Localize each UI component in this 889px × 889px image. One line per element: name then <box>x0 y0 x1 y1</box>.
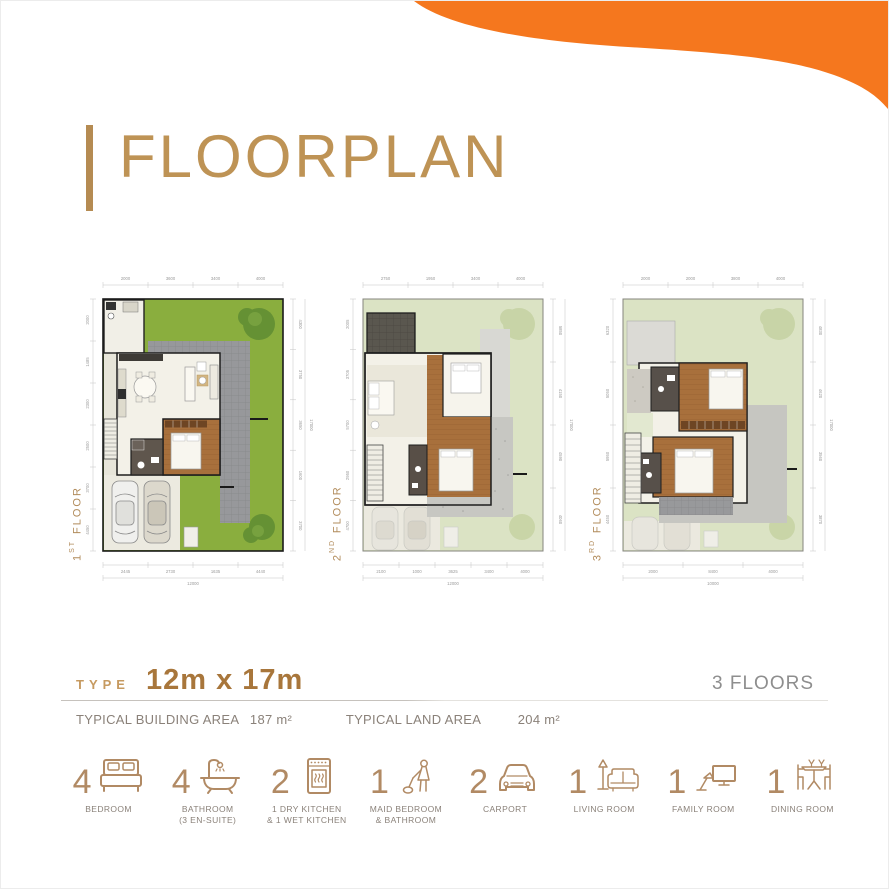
dim-label: 12000 <box>187 581 199 586</box>
feature-count: 1 <box>370 769 389 797</box>
dim-label: 3800 <box>731 276 741 281</box>
feature-count: 1 <box>766 769 785 797</box>
type-label: TYPE <box>76 677 130 692</box>
dim-label: 8400 <box>708 569 718 574</box>
dim-label: 3750 <box>298 370 303 380</box>
floorplan-2nd-floor-drawing: 2750195034004000210010003625340040001200… <box>323 269 573 589</box>
dim-label: 3600 <box>166 276 176 281</box>
building-area-label: TYPICAL BUILDING AREA <box>76 712 246 727</box>
dim-label: 2300 <box>85 399 90 409</box>
feature-label: 1 DRY KITCHEN& 1 WET KITCHEN <box>267 804 347 827</box>
feature-label: BEDROOM <box>85 804 132 815</box>
floor-label-word: FLOOR <box>592 485 604 533</box>
land-area-value: 204 m² <box>518 712 560 727</box>
dim-label: 3700 <box>85 483 90 493</box>
feature-kitchen: 2 1 DRY KITCHEN& 1 WET KITCHEN <box>257 753 356 827</box>
dim-label: 4450 <box>85 525 90 535</box>
dim-label: 1000 <box>412 569 422 574</box>
feature-maid-room: 1 MAID BEDROOM& BATHROOM <box>356 753 455 827</box>
dim-label: 4440 <box>256 569 266 574</box>
floor-label-ordinal: ND <box>329 539 336 553</box>
land-area-label: TYPICAL LAND AREA <box>346 712 514 727</box>
floor-label-number: 2 <box>332 553 344 561</box>
dim-label: 4000 <box>776 276 786 281</box>
floorplan-3rd-floor: 2000200038004000200084004000100004830462… <box>583 269 839 591</box>
floorplan-brochure-page: FLOORPLAN <box>0 0 889 889</box>
dim-label: 3400 <box>484 569 494 574</box>
dim-label: 6320 <box>605 325 610 335</box>
floorplan-1st-floor-drawing: 2000360034004000244527301635444012000430… <box>63 269 313 589</box>
floors-count: 3 FLOORS <box>712 673 814 695</box>
feature-count: 1 <box>568 769 587 797</box>
floor-label-2: 2NDFLOOR <box>329 485 344 561</box>
dim-label: 2750 <box>381 276 391 281</box>
dim-label: 4150 <box>558 389 563 399</box>
feature-label: BATHROOM(3 EN-SUITE) <box>179 804 236 827</box>
feature-label: DINING ROOM <box>771 804 834 815</box>
dim-label: 1485 <box>85 357 90 367</box>
floorplan-2nd-floor: 2750195034004000210010003625340040001200… <box>323 269 579 591</box>
feature-count: 1 <box>667 769 686 797</box>
dim-label: 2000 <box>85 315 90 325</box>
dim-label: 2005 <box>345 319 350 329</box>
floor-label-3: 3RDFLOOR <box>589 485 604 561</box>
dim-label: 2730 <box>166 569 176 574</box>
page-title: FLOORPLAN <box>119 122 509 191</box>
bathtub-icon <box>196 757 244 797</box>
feature-dining-room: 1 DINING ROOM <box>753 753 852 827</box>
dim-label: 5850 <box>558 326 563 336</box>
floorplan-3rd-floor-drawing: 2000200038004000200084004000100004830462… <box>583 269 833 589</box>
feature-label: CARPORT <box>483 804 527 815</box>
dim-label: 2000 <box>641 276 651 281</box>
feature-carport: 2 CARPORT <box>456 753 555 827</box>
dim-label: 17000 <box>569 419 573 431</box>
dim-label: 4000 <box>516 276 526 281</box>
dim-label: 2445 <box>121 569 131 574</box>
tv-icon <box>691 757 739 797</box>
dim-label: 3400 <box>211 276 221 281</box>
dim-label: 12000 <box>447 581 459 586</box>
dim-label: 2000 <box>121 276 131 281</box>
dim-label: 5700 <box>345 420 350 430</box>
dim-label: 1950 <box>426 276 436 281</box>
feature-label: FAMILY ROOM <box>672 804 735 815</box>
floor-label-word: FLOOR <box>72 486 84 534</box>
sofa-icon <box>592 757 640 797</box>
dim-label: 10000 <box>707 581 719 586</box>
floor-label-ordinal: RD <box>589 539 596 553</box>
divider-line <box>61 700 828 701</box>
dim-label: 2950 <box>345 470 350 480</box>
title-accent-bar <box>86 125 93 211</box>
dim-label: 3705 <box>345 369 350 379</box>
floor-label-ordinal: ST <box>69 540 76 553</box>
dim-label: 1635 <box>211 569 221 574</box>
floorplan-1st-floor: 2000360034004000244527301635444012000430… <box>63 269 319 591</box>
dim-label: 2500 <box>85 441 90 451</box>
dim-label: 17000 <box>309 419 313 431</box>
dim-label: 1600 <box>298 471 303 481</box>
feature-living-room: 1 LIVING ROOM <box>555 753 654 827</box>
feature-bathroom: 4 BATHROOM(3 EN-SUITE) <box>158 753 257 827</box>
feature-label: MAID BEDROOM& BATHROOM <box>370 804 442 827</box>
feature-bedroom: 4 BEDROOM <box>59 753 158 827</box>
building-area-value: 187 m² <box>250 712 342 727</box>
oven-icon <box>295 757 343 797</box>
dining-icon <box>790 757 838 797</box>
areas-row: TYPICAL BUILDING AREA 187 m² TYPICAL LAN… <box>76 712 560 727</box>
dim-label: 2000 <box>686 276 696 281</box>
dim-label: 2100 <box>376 569 386 574</box>
dim-label: 4590 <box>558 452 563 462</box>
feature-family-room: 1 FAMILY ROOM <box>654 753 753 827</box>
dim-label: 3400 <box>471 276 481 281</box>
dim-label: 4450 <box>605 514 610 524</box>
floor-label-word: FLOOR <box>332 485 344 533</box>
floor-label-number: 1 <box>72 553 84 561</box>
car-icon <box>493 757 541 797</box>
feature-count: 2 <box>271 769 290 797</box>
feature-count: 4 <box>73 769 92 797</box>
dim-label: 4830 <box>818 326 823 336</box>
dim-label: 4060 <box>558 515 563 525</box>
dim-label: 3700 <box>298 521 303 531</box>
dim-label: 3650 <box>298 420 303 430</box>
type-row: TYPE 12m x 17m <box>76 664 303 697</box>
dim-label: 5950 <box>605 451 610 461</box>
dim-label: 3870 <box>818 515 823 525</box>
dim-label: 17000 <box>829 419 833 431</box>
corner-swoosh <box>408 1 888 116</box>
dim-label: 4000 <box>768 569 778 574</box>
type-value: 12m x 17m <box>146 664 303 697</box>
feature-count: 2 <box>469 769 488 797</box>
maid-icon <box>394 757 442 797</box>
feature-label: LIVING ROOM <box>574 804 635 815</box>
dim-label: 2000 <box>648 569 658 574</box>
dim-label: 4000 <box>256 276 266 281</box>
dim-label: 4300 <box>298 320 303 330</box>
dim-label: 4620 <box>818 389 823 399</box>
dim-label: 3560 <box>818 452 823 462</box>
dim-label: 5050 <box>605 388 610 398</box>
dim-label: 3625 <box>448 569 458 574</box>
floor-label-1: 1STFLOOR <box>69 486 84 561</box>
feature-count: 4 <box>172 769 191 797</box>
features-row: 4 BEDROOM 4 <box>59 753 852 827</box>
bed-icon <box>97 757 145 797</box>
dim-label: 4700 <box>345 520 350 530</box>
floor-label-number: 3 <box>592 553 604 561</box>
dim-label: 4000 <box>520 569 530 574</box>
